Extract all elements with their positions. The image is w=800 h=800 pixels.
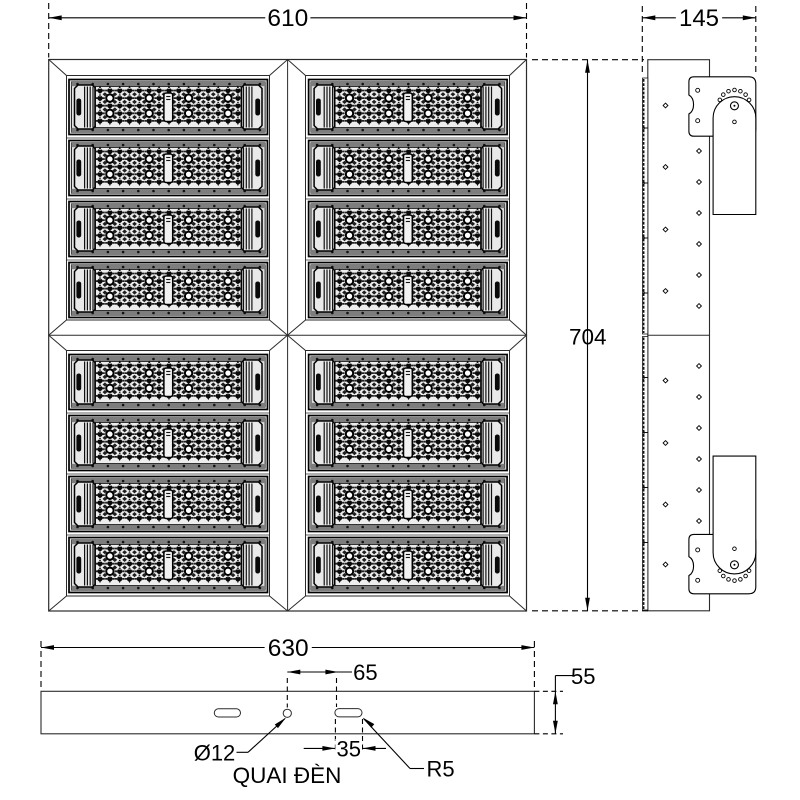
- svg-text:630: 630: [268, 635, 309, 662]
- svg-text:R5: R5: [426, 757, 454, 782]
- svg-text:704: 704: [569, 324, 607, 349]
- svg-text:55: 55: [571, 664, 595, 689]
- svg-text:35: 35: [336, 737, 360, 762]
- svg-text:65: 65: [353, 660, 377, 685]
- svg-text:145: 145: [679, 5, 719, 32]
- svg-text:QUAI ĐÈN: QUAI ĐÈN: [233, 763, 342, 788]
- svg-text:Ø12: Ø12: [194, 740, 236, 765]
- svg-text:610: 610: [267, 5, 308, 32]
